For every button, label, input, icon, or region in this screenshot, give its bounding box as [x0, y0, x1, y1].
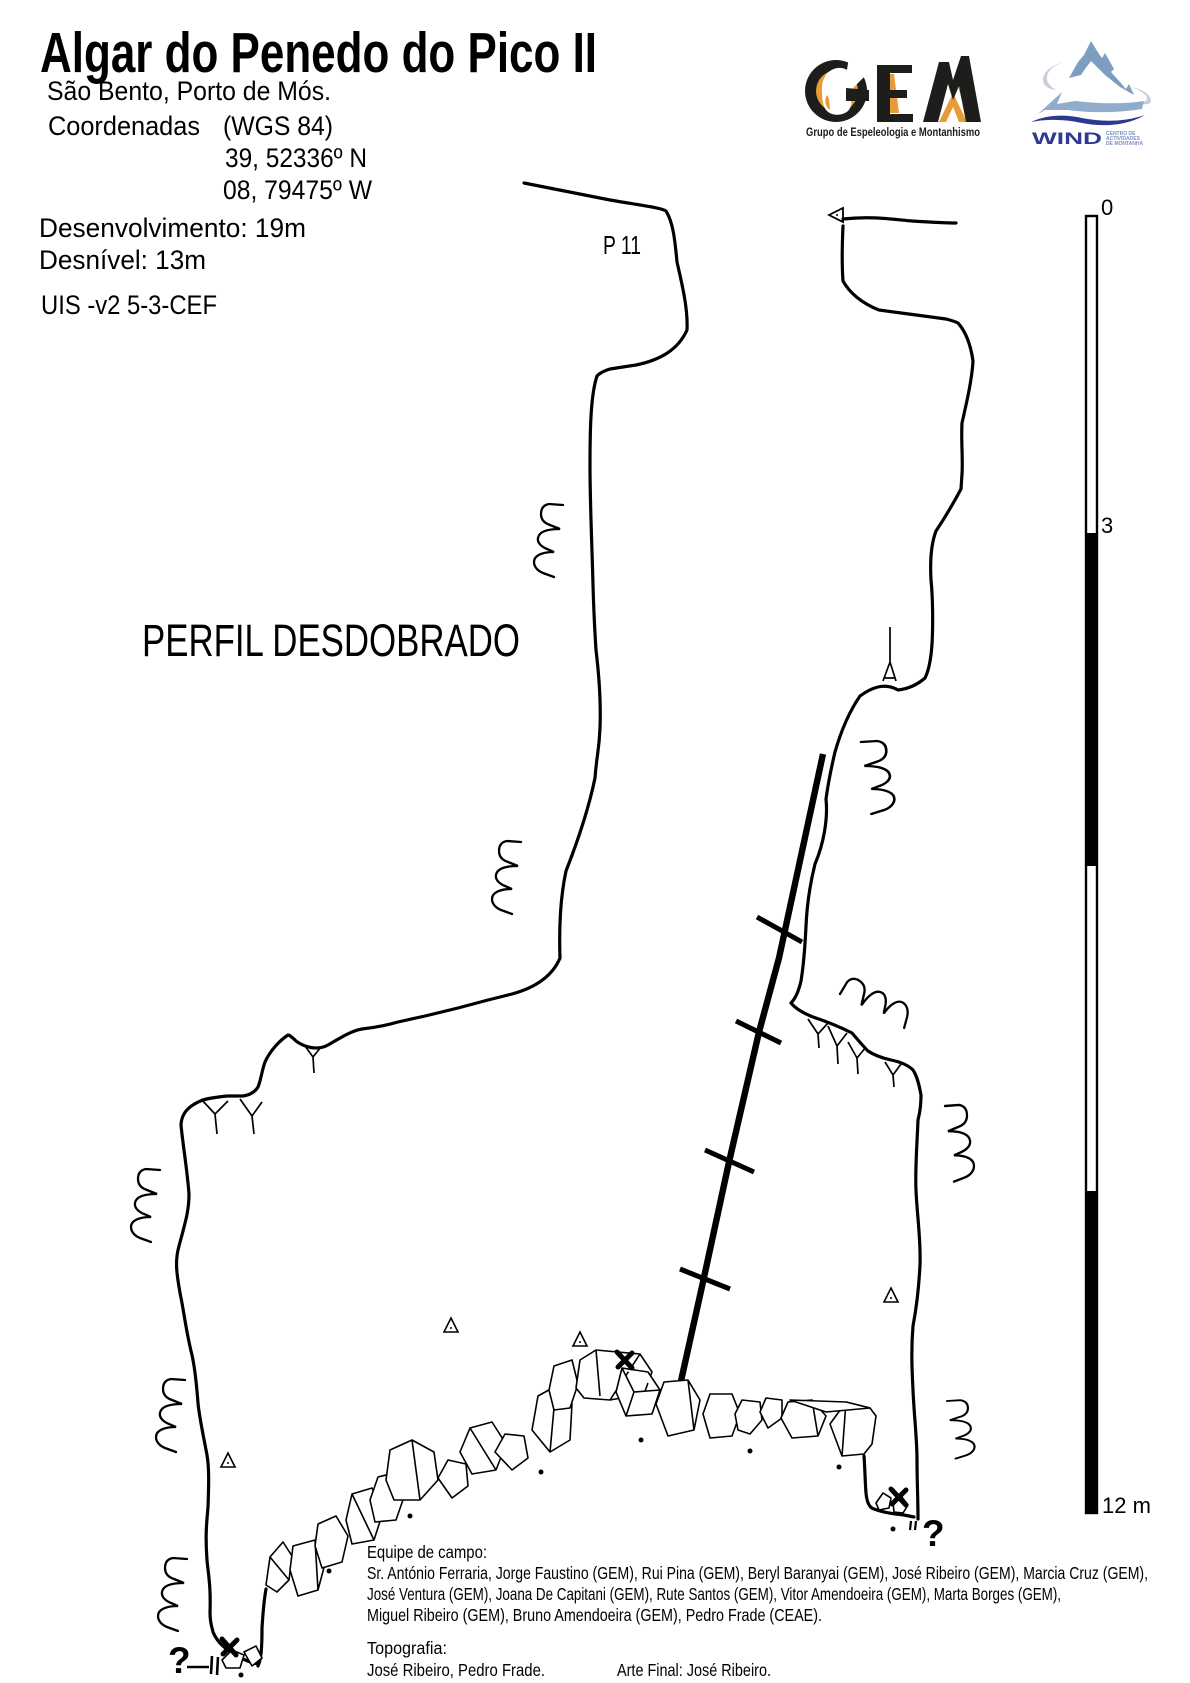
svg-text:DE MONTANHA: DE MONTANHA [1106, 141, 1144, 147]
svg-text:08, 79475º W: 08, 79475º W [223, 175, 372, 205]
svg-text:?: ? [168, 1640, 191, 1681]
svg-text:José Ribeiro, Pedro Frade.: José Ribeiro, Pedro Frade. [367, 1660, 545, 1680]
svg-text:São Bento, Porto de Mós.: São Bento, Porto de Mós. [47, 76, 331, 106]
svg-text:Grupo de Espeleologia e Montan: Grupo de Espeleologia e Montanhismo [806, 125, 980, 139]
svg-text:WIND: WIND [1032, 129, 1102, 148]
svg-text:P 11: P 11 [603, 230, 641, 260]
svg-text:Desnível: 13m: Desnível: 13m [39, 245, 206, 275]
svg-text:(WGS 84): (WGS 84) [223, 111, 333, 141]
svg-text:?: ? [922, 1513, 945, 1554]
svg-text:Topografia:: Topografia: [367, 1638, 447, 1658]
svg-text:Sr. António Ferraria, Jorge Fa: Sr. António Ferraria, Jorge Faustino (GE… [367, 1563, 1148, 1583]
svg-text:Arte Final: José Ribeiro.: Arte Final: José Ribeiro. [617, 1660, 771, 1680]
svg-text:Equipe de campo:: Equipe de campo: [367, 1542, 487, 1562]
svg-text:UIS -v2 5-3-CEF: UIS -v2 5-3-CEF [41, 290, 217, 320]
svg-text:0: 0 [1101, 195, 1113, 220]
svg-text:Miguel Ribeiro (GEM), Bruno Am: Miguel Ribeiro (GEM), Bruno Amendoeira (… [367, 1605, 822, 1625]
svg-text:Coordenadas: Coordenadas [48, 111, 200, 141]
svg-text:PERFIL DESDOBRADO: PERFIL DESDOBRADO [142, 615, 520, 666]
svg-text:Desenvolvimento: 19m: Desenvolvimento: 19m [39, 213, 306, 243]
svg-text:12 m: 12 m [1102, 1493, 1151, 1518]
svg-text:3: 3 [1101, 513, 1113, 538]
svg-text:39, 52336º N: 39, 52336º N [225, 143, 367, 173]
svg-text:José Ventura (GEM), Joana De C: José Ventura (GEM), Joana De Capitani (G… [367, 1584, 1061, 1604]
